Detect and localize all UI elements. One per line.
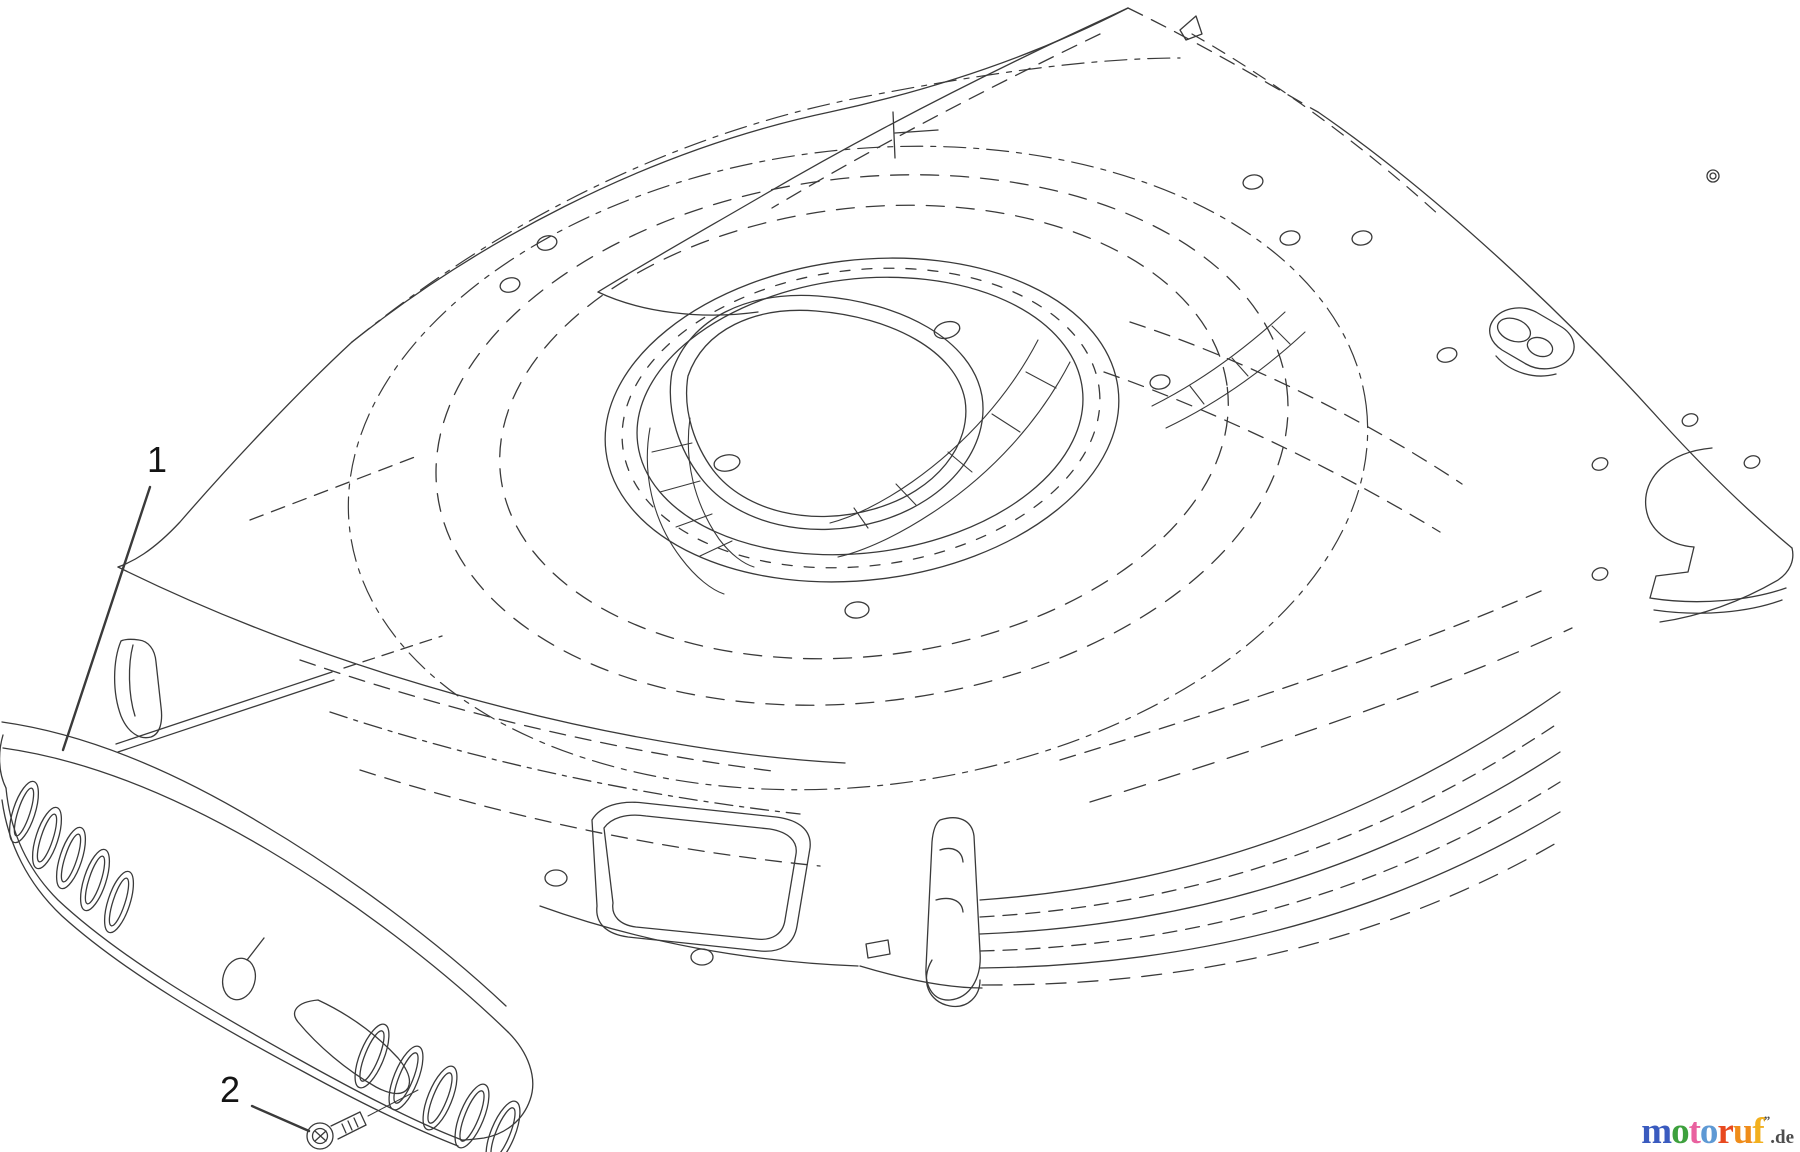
bolt-hole bbox=[1436, 346, 1459, 365]
front-wall bbox=[118, 567, 980, 1006]
blade-chamber-rings bbox=[405, 128, 1318, 752]
slot-hole bbox=[866, 940, 890, 958]
callout-1-leader bbox=[63, 487, 150, 750]
bolt-hole bbox=[1590, 566, 1609, 583]
logo-letter: f bbox=[1752, 1113, 1763, 1150]
logo-trademark-mark: ” bbox=[1764, 1113, 1771, 1128]
right-wall bbox=[1104, 170, 1786, 613]
deck-holes bbox=[499, 173, 1459, 390]
rear-tunnel bbox=[598, 8, 1202, 315]
callouts: 1 2 bbox=[63, 439, 309, 1131]
deck-hidden-outline bbox=[311, 34, 1440, 846]
part-1-front-skirt bbox=[0, 722, 533, 1152]
bolt-hole bbox=[1742, 454, 1761, 471]
corner-post bbox=[926, 818, 980, 1000]
rope-guide bbox=[1490, 308, 1574, 376]
mount-hole bbox=[713, 453, 741, 473]
bolt-hole bbox=[1707, 170, 1719, 182]
mower-deck-diagram: 1 2 bbox=[0, 0, 1800, 1152]
deck-body-outline bbox=[115, 8, 1793, 752]
arrow-detail bbox=[1180, 16, 1202, 40]
callout-2-leader bbox=[252, 1106, 309, 1131]
bolt-hole bbox=[1590, 456, 1609, 473]
center-opening bbox=[670, 295, 983, 529]
logo-letter: o bbox=[1700, 1113, 1718, 1150]
motoruf-logo[interactable]: motoruf”.de bbox=[1641, 1113, 1794, 1150]
bottom-contours bbox=[860, 588, 1572, 988]
logo-letter: u bbox=[1733, 1113, 1753, 1150]
bolt-hole bbox=[1279, 229, 1301, 246]
parts-diagram-page: 1 2 motoruf”.de bbox=[0, 0, 1800, 1152]
logo-letter: m bbox=[1641, 1113, 1671, 1150]
logo-domain-suffix: .de bbox=[1770, 1127, 1794, 1148]
rib-arms bbox=[647, 312, 1305, 594]
bolt-hole bbox=[1680, 412, 1699, 429]
logo-letter: t bbox=[1689, 1113, 1700, 1150]
skirt-hole bbox=[218, 955, 260, 1004]
bolt-hole bbox=[691, 949, 713, 965]
callout-2-label: 2 bbox=[220, 1069, 240, 1110]
bolt-hole bbox=[545, 870, 567, 886]
bolt-hole bbox=[499, 276, 522, 295]
label-recess bbox=[592, 802, 810, 951]
part-2-screw bbox=[307, 1090, 418, 1149]
callout-1-label: 1 bbox=[147, 439, 167, 480]
mount-hole bbox=[844, 601, 869, 619]
mount-hole bbox=[932, 319, 961, 341]
bolt-hole bbox=[1351, 229, 1373, 246]
bolt-hole bbox=[1242, 173, 1264, 190]
logo-letter: o bbox=[1671, 1113, 1689, 1150]
bolt-hole bbox=[1149, 373, 1171, 390]
logo-letter: r bbox=[1717, 1113, 1732, 1150]
